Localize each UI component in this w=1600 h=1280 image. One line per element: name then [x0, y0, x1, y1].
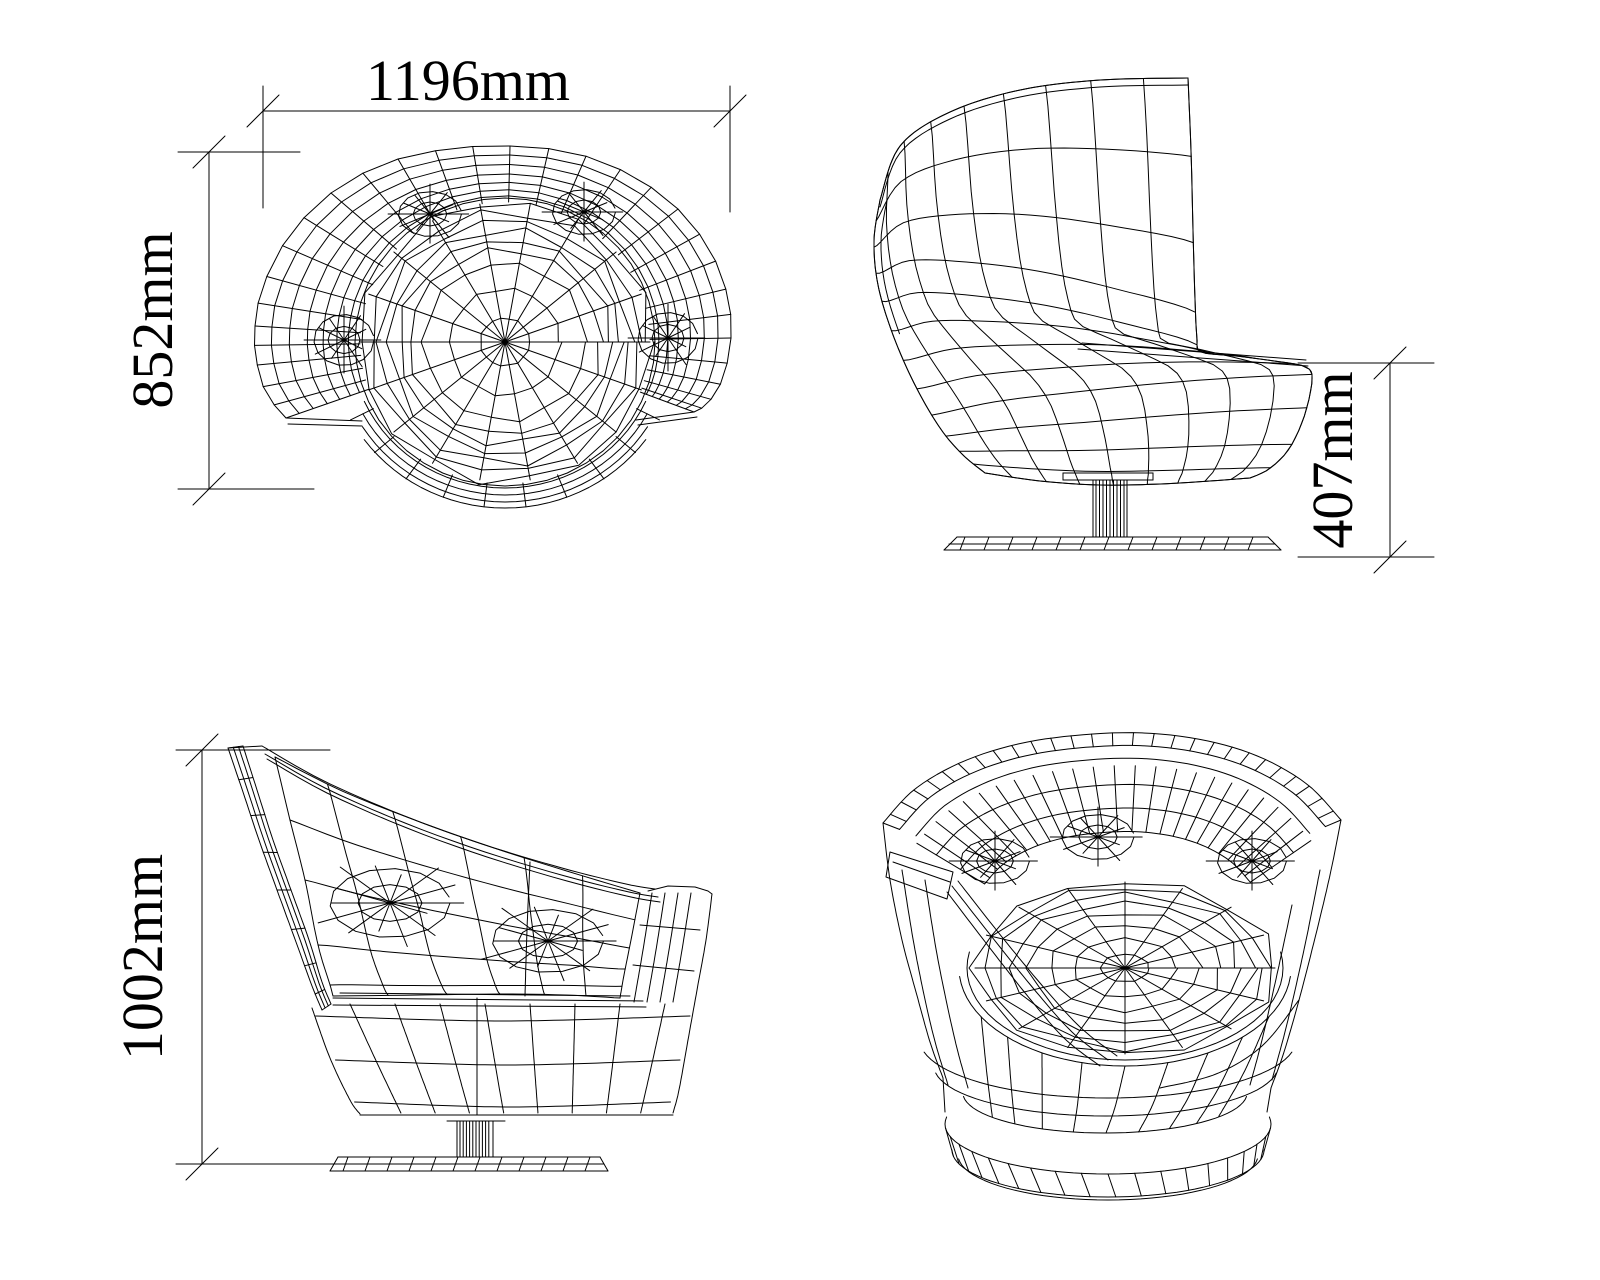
seat-height-dimension-label: 407mm: [1300, 371, 1365, 548]
front-elevation-wireframe: [228, 746, 712, 1171]
side-view-wireframe: [874, 78, 1312, 550]
depth-dimension-label: 852mm: [120, 231, 185, 408]
top-view-wireframe: [255, 146, 732, 508]
chair-four-view-wireframe-drawing: 1196mm 852mm 407mm 1002mm: [0, 0, 1600, 1280]
overall-height-dimension-label: 1002mm: [110, 854, 175, 1060]
technical-drawing-canvas: 1196mm 852mm 407mm 1002mm: [0, 0, 1600, 1280]
width-dimension-label: 1196mm: [366, 48, 570, 113]
perspective-view-wireframe: [883, 733, 1341, 1200]
